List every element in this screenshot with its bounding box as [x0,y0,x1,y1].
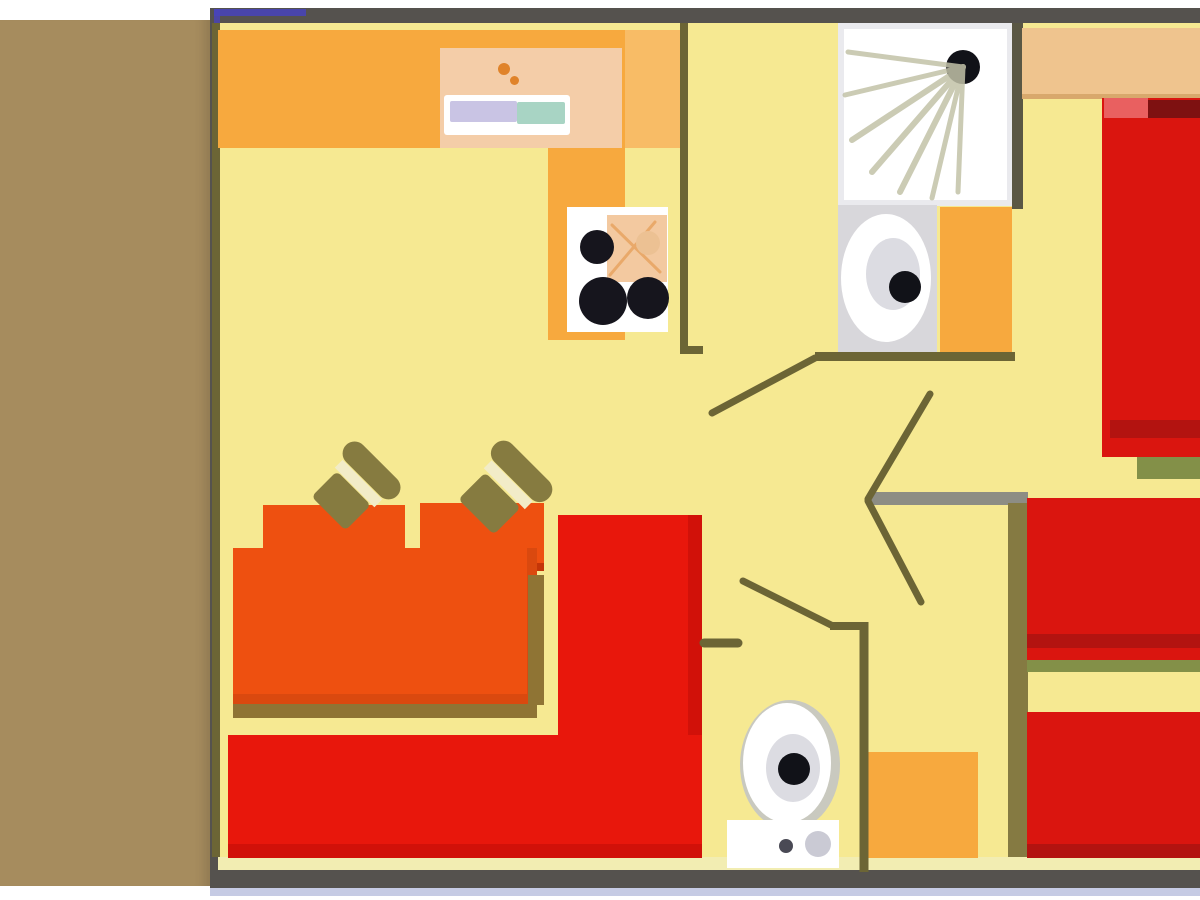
cistern-dot [779,839,793,853]
floor-edge-cream [218,857,1200,870]
double-bed-fold [1110,420,1200,438]
kitchen-faucet-dot-2 [510,76,519,85]
bedroom2-headboard-shelf [1008,503,1028,857]
shower-tray [838,23,1013,206]
left-wall-line [212,23,220,857]
kitchen-wall-stub [680,346,703,354]
table-shadow-bottom [233,704,537,718]
double-bed-pillow [1104,98,1148,118]
toilet-drain [778,753,810,785]
bathroom-cabinet [940,207,1012,355]
stove-grill [607,215,667,282]
cistern-button [805,831,831,857]
dining-table [233,548,537,704]
corner-sofa-bottom [228,735,702,858]
bedroom1-wardrobe [1022,28,1200,96]
kitchen-sink-bowl-left [450,101,517,122]
shower-drain [946,50,980,84]
bedroom2-wardrobe [868,752,978,858]
double-bed [1102,98,1200,457]
stove-burner-small [580,230,614,264]
twin-bed-top-fold [1027,634,1200,648]
stove-burner-right [627,277,669,319]
kitchen-sink-bowl-right [517,102,565,124]
double-bed-footboard [1137,457,1200,479]
stove-burner-left [579,277,627,325]
floor-plan-image [0,0,1200,900]
bedroom-divider-wall [868,492,1028,505]
washbasin-drain [889,271,921,303]
frame-bottom-strip [210,888,1200,896]
kitchen-faucet-dot-1 [498,63,510,75]
twin-bed-top-shadow [1027,660,1200,672]
bathroom-bottom-wall [815,352,1015,361]
table-shadow-right [528,575,544,705]
kitchen-worktop-top-light [625,30,680,148]
terrace-strip [0,20,210,886]
twin-bed-bottom-fold [1027,844,1200,858]
kitchen-wall [680,23,688,353]
frame-blue-corner-h [214,9,306,16]
double-bed-headband [1148,100,1200,118]
twin-bed-bottom [1027,712,1200,858]
